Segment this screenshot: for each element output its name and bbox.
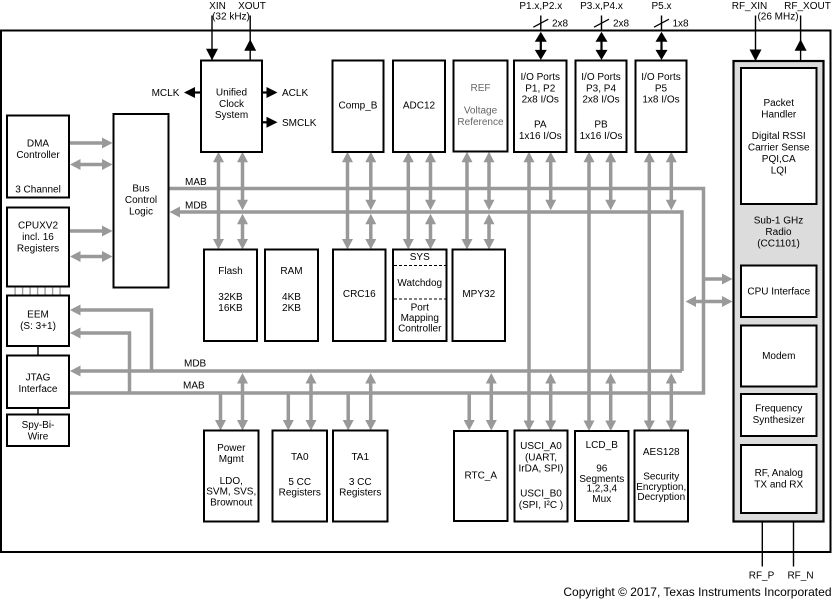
svg-text:Control: Control: [125, 195, 157, 206]
svg-text:2x8 I/Os: 2x8 I/Os: [582, 95, 619, 106]
svg-text:3 Channel: 3 Channel: [15, 185, 61, 196]
svg-text:LQI: LQI: [771, 165, 787, 176]
svg-text:4KB: 4KB: [282, 292, 301, 303]
svg-text:TX and RX: TX and RX: [754, 480, 803, 491]
svg-text:16KB: 16KB: [218, 303, 243, 314]
svg-text:Spy-Bi-: Spy-Bi-: [22, 420, 55, 431]
svg-text:MPY32: MPY32: [462, 289, 495, 300]
svg-text:Registers: Registers: [279, 488, 321, 499]
svg-text:DMA: DMA: [27, 139, 50, 150]
svg-text:Bus: Bus: [132, 184, 149, 195]
svg-text:Flash: Flash: [218, 266, 242, 277]
svg-text:XOUT: XOUT: [238, 1, 266, 12]
svg-text:SVM, SVS,: SVM, SVS,: [206, 487, 256, 498]
svg-text:Copyright © 2017, Texas Instru: Copyright © 2017, Texas Instruments Inco…: [563, 585, 831, 599]
svg-text:2x8: 2x8: [552, 19, 569, 30]
svg-text:Packet: Packet: [763, 98, 794, 109]
svg-text:MDB: MDB: [185, 201, 208, 212]
svg-text:Watchdog: Watchdog: [397, 278, 442, 289]
svg-text:REF: REF: [471, 83, 491, 94]
svg-text:Digital RSSI: Digital RSSI: [752, 131, 806, 142]
svg-text:RF, Analog: RF, Analog: [755, 468, 803, 479]
svg-text:1x16 I/Os: 1x16 I/Os: [580, 131, 623, 142]
svg-text:RF_XIN: RF_XIN: [732, 1, 768, 12]
svg-text:CPU Interface: CPU Interface: [747, 287, 810, 298]
svg-text:AES128: AES128: [643, 447, 680, 458]
svg-text:1x8 I/Os: 1x8 I/Os: [642, 95, 679, 106]
svg-text:RF_N: RF_N: [787, 571, 813, 582]
svg-text:32KB: 32KB: [218, 292, 243, 303]
svg-text:Power: Power: [217, 443, 246, 454]
svg-text:Port: Port: [411, 303, 430, 314]
svg-text:P1, P2: P1, P2: [525, 83, 555, 94]
svg-text:System: System: [215, 110, 248, 121]
svg-text:I/O Ports: I/O Ports: [521, 72, 560, 83]
svg-text:(26 MHz): (26 MHz): [757, 12, 798, 23]
svg-text:RTC_A: RTC_A: [464, 471, 497, 482]
svg-text:Mgmt: Mgmt: [219, 454, 244, 465]
svg-text:P3.x,P4.x: P3.x,P4.x: [580, 1, 623, 12]
svg-text:Modem: Modem: [762, 351, 795, 362]
svg-text:96: 96: [596, 464, 608, 475]
svg-text:ACLK: ACLK: [282, 88, 308, 99]
svg-text:P5: P5: [655, 83, 668, 94]
svg-text:TA0: TA0: [291, 452, 309, 463]
svg-text:Interface: Interface: [19, 384, 58, 395]
svg-text:MDB: MDB: [184, 359, 207, 370]
svg-text:Mapping: Mapping: [401, 313, 439, 324]
svg-text:XIN: XIN: [209, 1, 226, 12]
svg-text:PB: PB: [594, 120, 608, 131]
svg-text:Decryption: Decryption: [637, 492, 685, 503]
svg-text:Carrier Sense: Carrier Sense: [748, 142, 810, 153]
svg-text:incl. 16: incl. 16: [22, 232, 54, 243]
svg-text:(UART,: (UART,: [525, 452, 557, 463]
svg-text:(S: 3+1): (S: 3+1): [20, 321, 56, 332]
svg-text:Reference: Reference: [457, 117, 504, 128]
svg-text:CPUXV2: CPUXV2: [18, 221, 58, 232]
svg-text:USCI_B0: USCI_B0: [520, 489, 562, 500]
svg-text:Sub-1 GHz: Sub-1 GHz: [754, 216, 803, 227]
svg-text:CRC16: CRC16: [343, 289, 376, 300]
svg-text:P5.x: P5.x: [651, 1, 671, 12]
svg-text:P3, P4: P3, P4: [586, 83, 616, 94]
svg-text:P1.x,P2.x: P1.x,P2.x: [519, 1, 562, 12]
svg-text:Controller: Controller: [16, 150, 60, 161]
svg-text:1x16 I/Os: 1x16 I/Os: [519, 131, 562, 142]
svg-text:PA: PA: [534, 120, 547, 131]
svg-text:Unified: Unified: [216, 88, 247, 99]
svg-text:Registers: Registers: [339, 488, 381, 499]
svg-text:2KB: 2KB: [282, 303, 301, 314]
svg-text:RAM: RAM: [280, 266, 302, 277]
svg-text:MAB: MAB: [185, 177, 207, 188]
svg-text:SYS: SYS: [410, 252, 430, 263]
svg-text:TA1: TA1: [351, 452, 369, 463]
svg-text:USCI_A0: USCI_A0: [520, 441, 562, 452]
svg-text:MAB: MAB: [183, 380, 205, 391]
svg-text:Mux: Mux: [592, 494, 611, 505]
svg-text:LCD_B: LCD_B: [586, 440, 619, 451]
svg-text:PQI,CA: PQI,CA: [762, 154, 796, 165]
svg-text:Voltage: Voltage: [464, 106, 498, 117]
svg-text:Synthesizer: Synthesizer: [753, 415, 806, 426]
svg-text:Logic: Logic: [129, 207, 153, 218]
svg-text:I/O Ports: I/O Ports: [641, 72, 680, 83]
svg-text:1x8: 1x8: [673, 19, 690, 30]
svg-text:EEM: EEM: [27, 310, 49, 321]
svg-text:IrDA, SPI): IrDA, SPI): [518, 464, 563, 475]
svg-text:Comp_B: Comp_B: [339, 101, 378, 112]
svg-text:2x8 I/Os: 2x8 I/Os: [522, 95, 559, 106]
svg-text:Brownout: Brownout: [210, 498, 252, 509]
svg-text:3 CC: 3 CC: [349, 477, 372, 488]
svg-text:(CC1101): (CC1101): [757, 239, 800, 250]
svg-text:Registers: Registers: [17, 244, 59, 255]
svg-text:SMCLK: SMCLK: [282, 118, 317, 129]
svg-text:2x8: 2x8: [613, 19, 630, 30]
svg-text:Radio: Radio: [765, 227, 792, 238]
svg-text:(32 kHz): (32 kHz): [212, 12, 250, 23]
svg-text:5 CC: 5 CC: [288, 477, 311, 488]
svg-text:MCLK: MCLK: [152, 88, 180, 99]
svg-text:Clock: Clock: [219, 99, 245, 110]
svg-text:Handler: Handler: [761, 109, 797, 120]
svg-text:I/O Ports: I/O Ports: [581, 72, 620, 83]
svg-text:RF_XOUT: RF_XOUT: [784, 1, 831, 12]
svg-text:LDO,: LDO,: [220, 476, 243, 487]
svg-text:Wire: Wire: [28, 432, 49, 443]
svg-text:(SPI, I²C ): (SPI, I²C ): [519, 500, 563, 511]
svg-text:JTAG: JTAG: [26, 373, 51, 384]
svg-text:Frequency: Frequency: [755, 404, 802, 415]
svg-text:ADC12: ADC12: [403, 101, 436, 112]
svg-text:Controller: Controller: [398, 324, 442, 335]
svg-text:RF_P: RF_P: [749, 571, 775, 582]
